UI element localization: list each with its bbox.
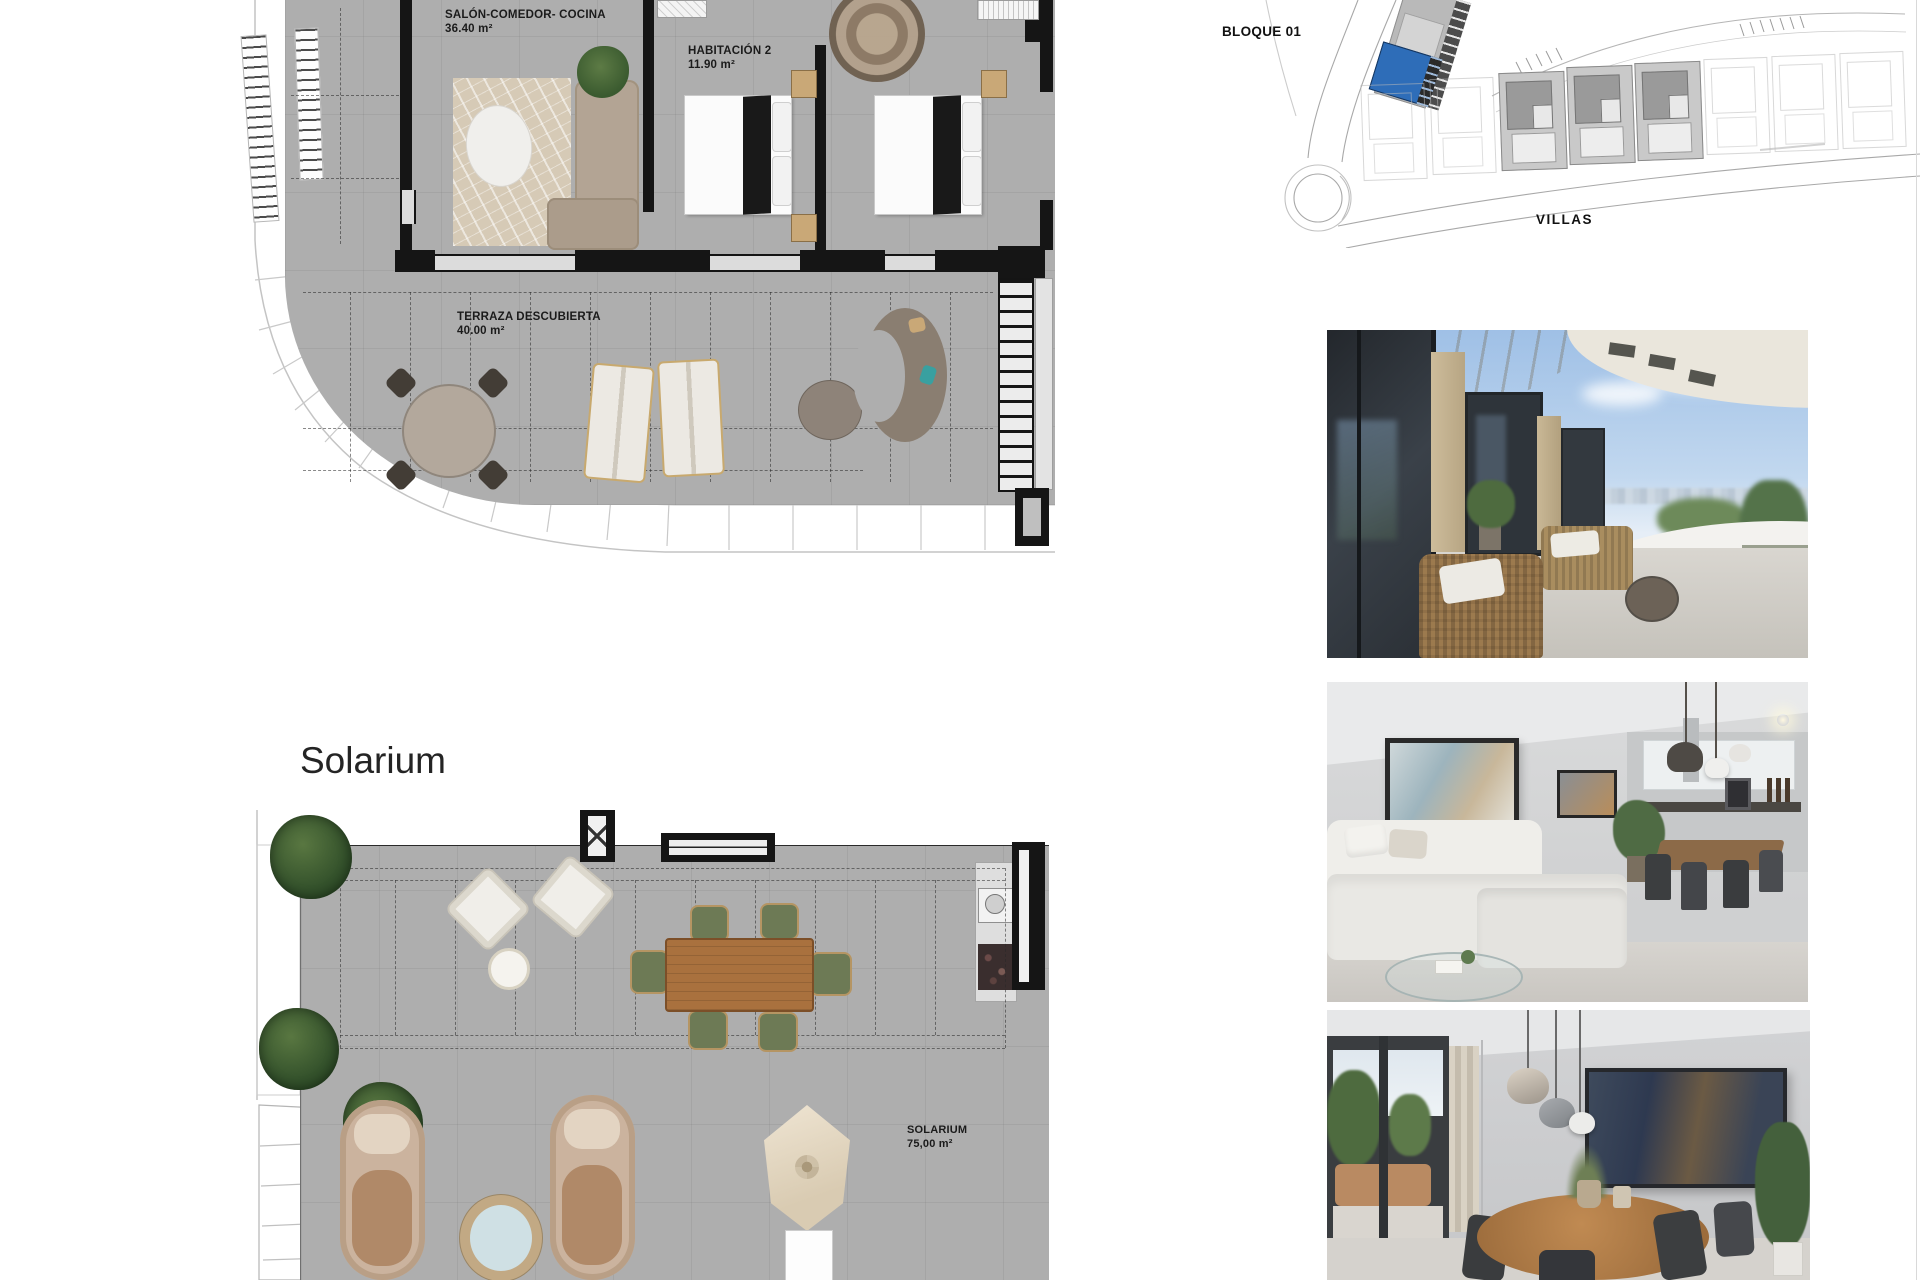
oval-table [798, 380, 862, 440]
villa-patio-outline [1784, 113, 1825, 144]
plant-pot [1773, 1242, 1803, 1276]
villa-highlight [1498, 71, 1567, 171]
glass-reflection [1337, 420, 1397, 540]
facade-wall [800, 250, 885, 272]
villa-ghost [1771, 54, 1838, 152]
floor-plan-solarium: SOLARIUM 75,00 m² [245, 810, 1067, 1280]
pendant-lamp [1569, 1112, 1595, 1134]
bloque-label: BLOQUE 01 [1222, 24, 1301, 39]
villa-ghost [1360, 83, 1427, 181]
curtain [1449, 1046, 1479, 1232]
dash-line [291, 178, 399, 179]
dash-line [350, 292, 351, 482]
daybed-cushion [352, 1170, 412, 1266]
dining-chair [1681, 862, 1707, 910]
villa-house-outline [1437, 86, 1483, 134]
villa-house-outline [1847, 60, 1893, 108]
palm [1327, 1070, 1381, 1166]
wall-inner [588, 816, 606, 856]
pendant-wire [1555, 1010, 1557, 1102]
bbq [978, 944, 1012, 990]
living-room-label: SALÓN-COMEDOR- COCINA 36.40 m² [445, 8, 635, 37]
room-area: 75,00 m² [907, 1138, 953, 1150]
sink-basin [985, 894, 1005, 914]
villa-patio-outline [1442, 136, 1483, 167]
wall [400, 224, 412, 250]
ceiling-light [1777, 714, 1789, 726]
dining-chair [1539, 1250, 1595, 1280]
daybed-cushion [562, 1165, 622, 1265]
table-plant [1461, 950, 1475, 964]
wall-inner [1019, 850, 1029, 982]
villa-highlight [1634, 61, 1703, 161]
floor-plan-upper: SALÓN-COMEDOR- COCINA 36.40 m² HABITACIÓ… [245, 0, 1067, 575]
cushion [1550, 530, 1600, 558]
photo-terrace [1327, 330, 1808, 658]
daybed [340, 1100, 425, 1280]
solarium-title: Solarium [300, 740, 446, 782]
dining-chair [760, 903, 799, 940]
pendant-wire [1685, 682, 1687, 748]
stair-wall [998, 246, 1045, 278]
door-frame [1357, 330, 1361, 658]
bedroom2-label: HABITACIÓN 2 11.90 m² [688, 44, 808, 73]
dining-chair [1713, 1201, 1755, 1258]
villa-highlight [1566, 65, 1635, 165]
villa-house-outline [1779, 63, 1825, 111]
room-name: HABITACIÓN 2 [688, 45, 771, 57]
nightstand [791, 214, 817, 242]
glass-door [1465, 392, 1543, 556]
room-area: 40.00 m² [457, 325, 505, 337]
dining-chair [630, 950, 669, 994]
villa-patio [1579, 126, 1624, 158]
dash-line [935, 880, 936, 1035]
dining-chair [688, 1010, 728, 1050]
window [400, 190, 416, 224]
tree [270, 815, 352, 899]
stair-rail [1035, 278, 1053, 490]
facade-wall [935, 250, 1005, 272]
wicker-armchair [1419, 554, 1543, 658]
pendant-wire [1579, 1010, 1581, 1114]
dash-line [291, 95, 399, 96]
radiator [977, 0, 1039, 20]
dining-chair [690, 905, 729, 942]
tree [259, 1008, 339, 1090]
plant [1755, 1122, 1810, 1248]
solarium-label: SOLARIUM 75,00 m² [907, 1124, 1007, 1152]
photo-living [1327, 682, 1808, 1002]
closet [657, 0, 707, 18]
wall [1040, 42, 1053, 92]
dash-line [340, 880, 1005, 881]
villa-house-notch [1532, 104, 1552, 128]
villa-ghost [1429, 77, 1496, 175]
pillow [1388, 829, 1428, 860]
dash-line [340, 868, 341, 1048]
sun-lounger [657, 358, 725, 477]
wall [643, 0, 654, 212]
site-plan: BLOQUE 01 VILLAS [1200, 0, 1920, 248]
pendant-lamp [1667, 742, 1703, 772]
dining-chair [758, 1012, 798, 1052]
parasol-finial [795, 1155, 819, 1179]
daybed [550, 1095, 635, 1280]
bed-throw [933, 95, 961, 214]
pillow [962, 156, 982, 206]
pendant-lamp [1729, 744, 1751, 762]
nightstand [791, 70, 817, 98]
table-decor [1435, 960, 1463, 974]
room-name: SOLARIUM [907, 1124, 967, 1136]
villa-patio-outline [1373, 142, 1414, 173]
room-area: 36.40 m² [445, 23, 493, 35]
stair-base-inner [1023, 498, 1041, 536]
pendant-wire [1527, 1010, 1529, 1072]
round-table [402, 384, 496, 478]
wall [1040, 200, 1053, 250]
round-table [1625, 576, 1679, 622]
dash-line [340, 1048, 1005, 1049]
villa-house-notch [1668, 94, 1688, 118]
pillow [772, 156, 792, 206]
pillow [1448, 829, 1492, 860]
sofa-chaise [1477, 888, 1627, 968]
wicker-table [460, 1195, 542, 1280]
villa-patio [1647, 122, 1692, 154]
side-table [488, 948, 530, 990]
dining-table [665, 938, 814, 1012]
sliding-door [885, 254, 935, 272]
pillow [1343, 824, 1388, 859]
curved-sofa-cut [853, 330, 905, 422]
villa-patio-outline [1852, 110, 1893, 141]
sliding-door [435, 254, 575, 272]
plant [1467, 480, 1515, 528]
photo-dining [1327, 1010, 1810, 1280]
stairs [998, 278, 1034, 492]
nightstand [981, 70, 1007, 98]
villa-patio-outline [1716, 116, 1757, 147]
wicker-sofa [1541, 526, 1633, 590]
pillow [962, 102, 982, 152]
daybed-pillow [354, 1114, 410, 1154]
dining-chair [1759, 850, 1783, 892]
dash-line [1005, 868, 1006, 1048]
facade-wall [395, 250, 435, 272]
wall-art-small [1557, 770, 1617, 818]
bed-throw [743, 95, 771, 214]
room-name: SALÓN-COMEDOR- COCINA [445, 9, 606, 21]
pendant-lamp [1507, 1068, 1549, 1104]
page-edge [1916, 0, 1917, 1280]
dining-chair [810, 952, 852, 996]
pillow [772, 102, 792, 152]
table-vase [1613, 1186, 1631, 1208]
sofa-chaise [547, 198, 639, 250]
dash-line [340, 8, 341, 244]
wall-column [1431, 352, 1465, 552]
brochure-page: SALÓN-COMEDOR- COCINA 36.40 m² HABITACIÓ… [0, 0, 1920, 1280]
oven [1725, 778, 1751, 810]
villa-house-outline [1711, 66, 1757, 114]
room-area: 11.90 m² [688, 59, 735, 71]
pendant-wire [1715, 682, 1717, 762]
dash-line [950, 292, 951, 482]
wall [400, 0, 412, 190]
sliding-door [710, 254, 800, 272]
villa-ghost [1839, 51, 1906, 149]
pendant-lamp [1705, 758, 1729, 778]
villa-house-outline [1368, 92, 1414, 140]
wall-art [1385, 738, 1519, 830]
villa-house-notch [1600, 98, 1620, 122]
dining-chair [1723, 860, 1749, 908]
sun-lounger [583, 363, 655, 484]
cushion [1438, 557, 1505, 604]
room-name: TERRAZA DESCUBIERTA [457, 311, 601, 323]
villa-ghost [1703, 57, 1770, 155]
table-vase [1577, 1180, 1601, 1208]
dash-line [340, 868, 1005, 869]
dash-line [770, 292, 771, 482]
dash-line [395, 880, 396, 1035]
daybed-pillow [564, 1109, 620, 1149]
wall-window [669, 840, 767, 855]
villa-patio [1511, 132, 1556, 164]
parasol-pole [785, 1230, 833, 1280]
palm [1389, 1094, 1431, 1156]
villas-label: VILLAS [1536, 212, 1593, 227]
facade-wall [575, 250, 710, 272]
dash-line [875, 880, 876, 1035]
dash-line [340, 1035, 1005, 1036]
bottles [1767, 778, 1793, 802]
terrace-label: TERRAZA DESCUBIERTA 40.00 m² [457, 310, 637, 339]
dining-chair [1645, 854, 1671, 900]
